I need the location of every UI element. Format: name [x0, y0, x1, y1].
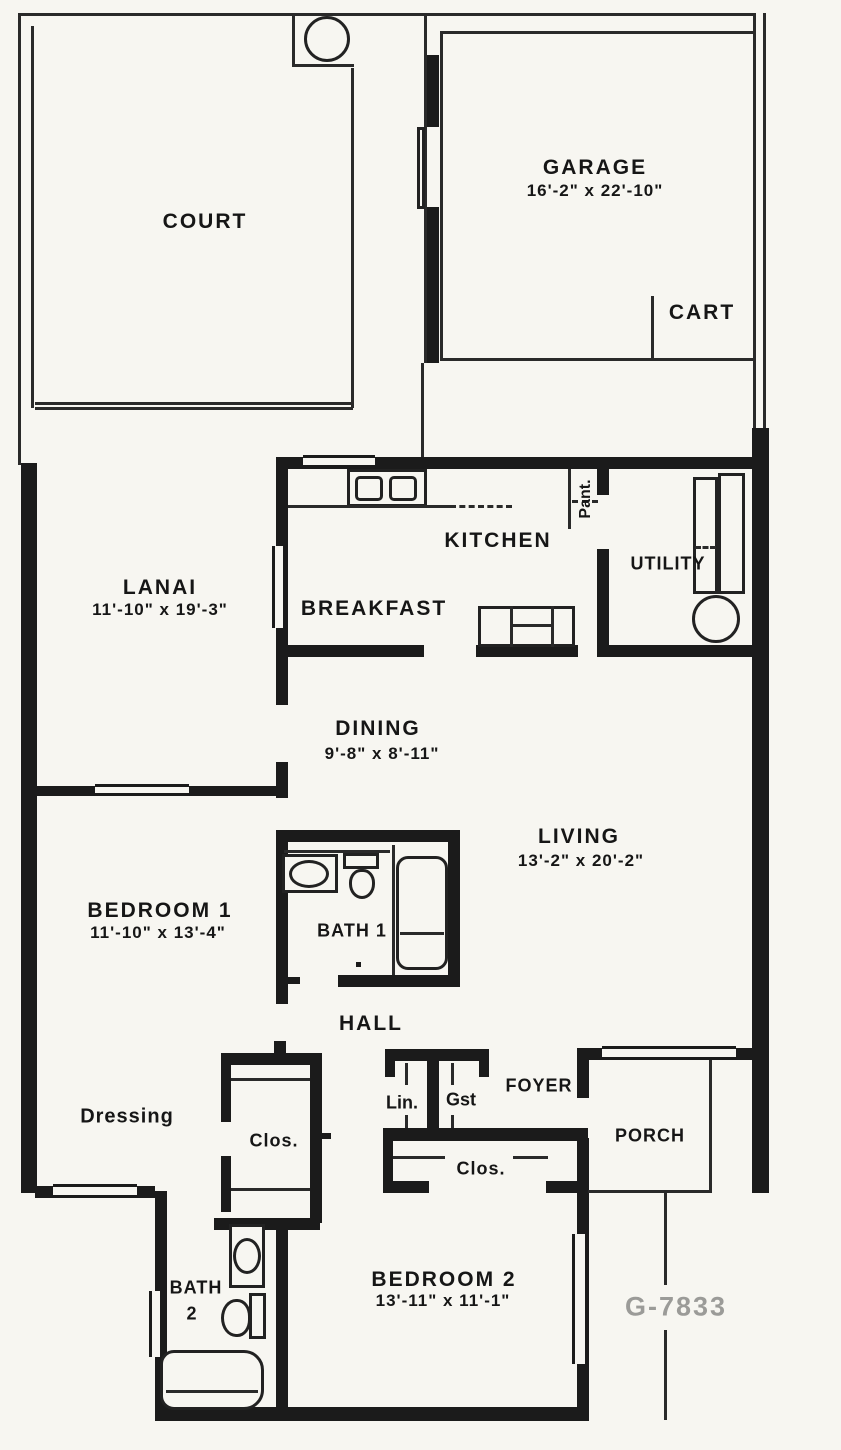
wall-segment	[35, 402, 353, 405]
room-label-linen: Lin.	[386, 1093, 418, 1114]
bath2-sink	[233, 1238, 261, 1274]
walkway-line	[664, 1193, 667, 1285]
window	[303, 455, 375, 468]
room-label-living: LIVING	[538, 825, 620, 849]
door-mark	[356, 962, 361, 967]
wall-segment	[338, 975, 460, 987]
wall-segment	[276, 653, 288, 705]
sink-basin	[389, 476, 417, 501]
wall-segment	[421, 363, 424, 469]
wall-segment	[392, 845, 395, 975]
closet-shelf	[513, 1156, 548, 1159]
washer	[693, 477, 718, 594]
room-label-lanai: LANAI	[123, 576, 197, 600]
dryer	[718, 473, 745, 594]
wall-segment	[440, 31, 443, 361]
door-leaf	[417, 127, 425, 209]
room-label-closet-walkin: Clos.	[249, 1131, 298, 1152]
room-dims-dining: 9'-8" x 8'-11"	[325, 744, 440, 764]
room-label-guest: Gst	[446, 1090, 476, 1111]
wall-segment	[221, 1053, 322, 1065]
room-label-bath1: BATH 1	[317, 921, 387, 942]
wall-segment	[479, 1061, 489, 1077]
wall-segment	[752, 428, 769, 1193]
porch-edge	[588, 1190, 712, 1193]
counter-edge	[288, 505, 450, 508]
window	[149, 1291, 163, 1357]
walkway-line	[664, 1330, 667, 1420]
closet-shelf	[231, 1078, 310, 1081]
wall-segment	[188, 786, 288, 796]
wall-segment	[276, 645, 424, 657]
room-label-foyer: FOYER	[505, 1076, 572, 1097]
wall-segment	[440, 358, 756, 361]
wall-segment	[753, 13, 756, 363]
wall-segment	[568, 469, 571, 529]
room-label-court: COURT	[163, 210, 248, 234]
room-label-bedroom1: BEDROOM 1	[87, 899, 232, 923]
wall-segment	[597, 645, 755, 657]
closet-rod	[451, 1063, 454, 1085]
wall-segment	[292, 13, 295, 67]
wall-segment	[651, 296, 654, 360]
wall-segment	[597, 549, 609, 657]
planter-icon	[304, 16, 350, 62]
toilet-bowl	[349, 869, 375, 899]
closet-rod	[405, 1063, 408, 1085]
window	[572, 1234, 588, 1364]
room-label-utility: UTILITY	[631, 554, 706, 575]
toilet-bowl	[221, 1299, 251, 1337]
wall-segment	[18, 13, 21, 465]
dishwasher-dashed-line	[450, 505, 512, 508]
bathtub-1	[396, 856, 448, 970]
room-label-kitchen: KITCHEN	[444, 529, 551, 553]
tub-line	[166, 1390, 258, 1393]
room-label-bath2: BATH	[170, 1278, 223, 1299]
window	[272, 546, 286, 628]
wall-segment	[35, 407, 353, 410]
wall-segment	[383, 1128, 588, 1141]
porch-edge	[709, 1060, 712, 1192]
toilet-tank	[249, 1293, 266, 1339]
washer-dashed-line	[695, 546, 716, 549]
plan-number: G-7833	[625, 1292, 727, 1323]
wall-segment	[383, 1181, 429, 1193]
room-label-cart: CART	[669, 301, 735, 325]
room-label-bedroom2: BEDROOM 2	[371, 1268, 516, 1292]
wall-segment	[427, 207, 439, 363]
wall-segment	[577, 1138, 589, 1194]
wall-segment	[763, 363, 766, 428]
wall-segment	[292, 64, 354, 67]
counter-divider	[510, 624, 554, 627]
room-dims-bedroom1: 11'-10" x 13'-4"	[90, 923, 226, 943]
wall-segment	[310, 1053, 322, 1223]
room-label-breakfast: BREAKFAST	[301, 597, 447, 621]
wall-segment	[31, 26, 34, 408]
wall-segment	[274, 1041, 286, 1053]
room-label-hall: HALL	[339, 1012, 403, 1036]
tub-line	[400, 932, 444, 935]
closet-shelf	[231, 1188, 310, 1191]
room-dims-garage: 16'-2" x 22'-10"	[527, 181, 664, 201]
wall-segment	[221, 1156, 231, 1212]
wall-segment	[427, 55, 439, 127]
bath1-sink	[289, 860, 329, 888]
wall-segment	[221, 1065, 231, 1122]
bathtub-2	[160, 1350, 264, 1410]
wall-segment	[753, 363, 756, 428]
wall-segment	[385, 1061, 395, 1077]
closet-shelf	[393, 1156, 445, 1159]
room-number-bath2: 2	[186, 1304, 197, 1325]
wall-segment	[29, 786, 97, 796]
wall-segment	[288, 977, 300, 984]
room-label-pantry: Pant.	[577, 479, 595, 518]
wall-segment	[322, 1133, 331, 1139]
wall-segment	[276, 830, 460, 842]
room-label-closet-foyer: Clos.	[456, 1159, 505, 1180]
wall-segment	[21, 463, 37, 1193]
toilet-tank	[343, 853, 379, 869]
wall-segment	[351, 68, 354, 408]
room-dims-lanai: 11'-10" x 19'-3"	[92, 600, 228, 620]
floor-plan: COURT GARAGE 16'-2" x 22'-10" CART LANAI…	[0, 0, 841, 1450]
wall-segment	[763, 13, 766, 363]
room-label-garage: GARAGE	[543, 156, 647, 180]
wall-segment	[448, 842, 460, 987]
room-dims-living: 13'-2" x 20'-2"	[518, 851, 644, 871]
window	[95, 784, 189, 796]
wall-segment	[276, 1218, 288, 1414]
sliding-door	[602, 1046, 736, 1060]
room-label-dressing: Dressing	[80, 1106, 174, 1129]
window	[53, 1184, 137, 1198]
wall-segment	[18, 13, 756, 16]
room-label-dining: DINING	[335, 717, 421, 741]
water-heater	[692, 595, 740, 643]
wall-segment	[427, 1049, 439, 1139]
sink-basin	[355, 476, 383, 501]
room-dims-bedroom2: 13'-11" x 11'-1"	[376, 1291, 511, 1311]
wall-segment	[597, 469, 609, 495]
wall-segment	[440, 31, 756, 34]
room-label-porch: PORCH	[615, 1126, 685, 1147]
